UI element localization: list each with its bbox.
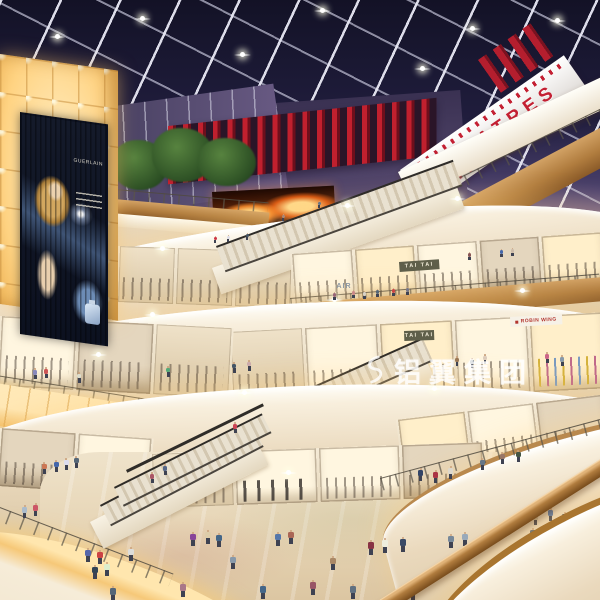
watermark: 铝翼集团 bbox=[362, 342, 597, 398]
mall-atrium-rendering: THEATRES TAI TAI AIR TAI TAI bbox=[0, 0, 600, 600]
robin-wing-sign-label: ROBIN WING bbox=[521, 317, 557, 325]
storefront bbox=[318, 445, 400, 502]
robin-wing-logo-mark bbox=[516, 320, 519, 323]
air-store-sign-label: AIR bbox=[336, 283, 351, 290]
air-store-sign: AIR bbox=[330, 281, 358, 292]
tai-tai-sign-lower-label: TAI TAI bbox=[405, 332, 434, 339]
watermark-text: 铝翼集团 bbox=[394, 351, 534, 390]
storefront bbox=[118, 246, 175, 304]
tai-tai-sign-lower: TAI TAI bbox=[404, 330, 434, 341]
perfume-bottle-graphic bbox=[85, 303, 100, 325]
perfume-ad-billboard: GUERLAIN bbox=[20, 112, 108, 346]
indoor-tree bbox=[198, 138, 256, 186]
watermark-swirl-logo bbox=[362, 353, 388, 387]
storefront bbox=[153, 324, 231, 398]
tai-tai-sign-upper-label: TAI TAI bbox=[405, 262, 434, 270]
